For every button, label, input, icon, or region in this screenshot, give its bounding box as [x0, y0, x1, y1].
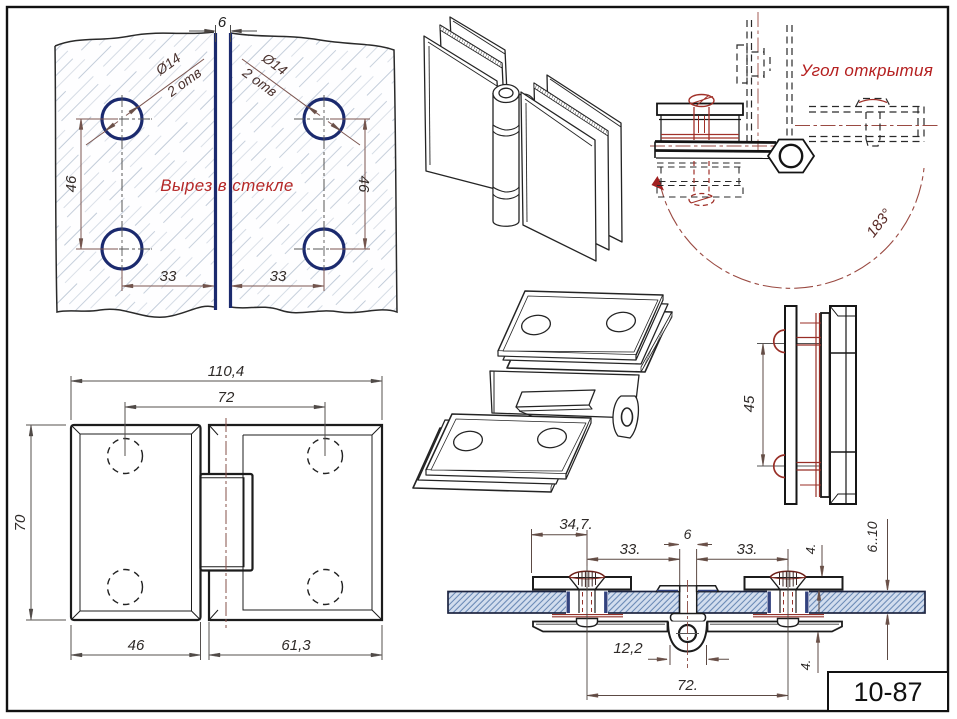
svg-text:46: 46: [128, 637, 145, 654]
svg-text:72.: 72.: [677, 677, 698, 694]
svg-text:Угол открытия: Угол открытия: [800, 61, 933, 80]
svg-text:6..10: 6..10: [864, 521, 880, 552]
svg-text:45: 45: [741, 395, 758, 412]
svg-text:Вырез в стекле: Вырез в стекле: [160, 176, 294, 195]
svg-text:183°: 183°: [863, 206, 896, 241]
svg-text:33.: 33.: [620, 541, 641, 558]
svg-text:46: 46: [355, 176, 372, 193]
svg-text:61,3: 61,3: [281, 637, 311, 654]
svg-text:10-87: 10-87: [853, 677, 922, 707]
svg-text:72: 72: [218, 389, 235, 406]
svg-text:33: 33: [160, 268, 177, 285]
svg-text:33.: 33.: [737, 541, 758, 558]
svg-text:4.: 4.: [798, 660, 813, 671]
svg-text:110,4: 110,4: [208, 363, 244, 380]
svg-text:46: 46: [63, 175, 80, 192]
svg-text:34,7.: 34,7.: [559, 516, 592, 533]
svg-text:4.: 4.: [803, 544, 818, 555]
svg-text:6: 6: [684, 526, 692, 542]
svg-text:70: 70: [12, 514, 29, 531]
svg-text:33: 33: [270, 268, 287, 285]
svg-text:12,2: 12,2: [613, 640, 643, 657]
svg-text:6: 6: [218, 14, 227, 31]
